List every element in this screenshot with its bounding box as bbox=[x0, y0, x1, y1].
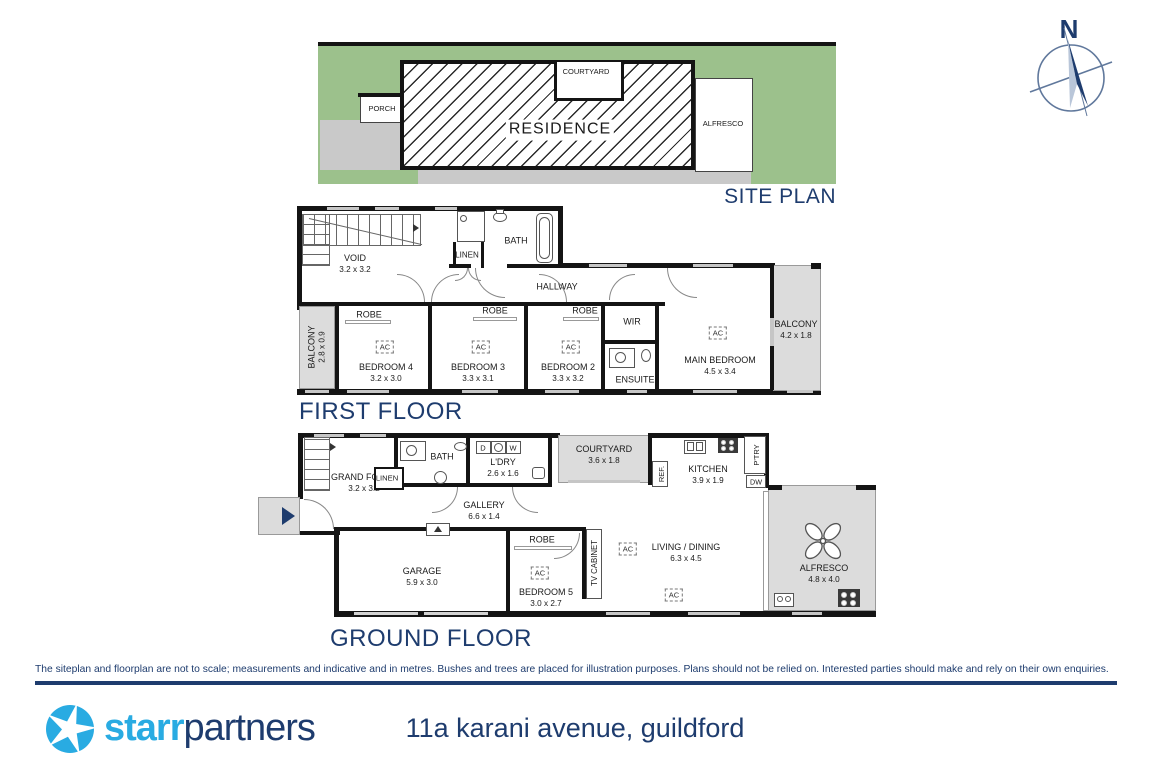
wall bbox=[548, 433, 552, 487]
wir-label: WIR bbox=[623, 317, 641, 327]
balcony-right-label: BALCONY 4.2 x 1.8 bbox=[774, 319, 817, 341]
window bbox=[545, 390, 579, 393]
wall bbox=[298, 433, 303, 499]
cooktop-burner bbox=[721, 440, 726, 445]
bbq-burner bbox=[841, 600, 847, 606]
garage-door bbox=[424, 612, 488, 615]
washer-label: W bbox=[509, 444, 516, 453]
robe-label: ROBE bbox=[356, 310, 382, 320]
ac-unit: AC bbox=[562, 341, 580, 354]
wall bbox=[335, 306, 339, 389]
ensuite-toilet bbox=[641, 349, 651, 362]
window bbox=[360, 434, 386, 437]
window bbox=[688, 612, 740, 615]
door-arc bbox=[397, 274, 425, 302]
dryer-label: D bbox=[480, 444, 485, 453]
wall bbox=[655, 306, 659, 389]
bath-basin-icon bbox=[406, 445, 417, 456]
window bbox=[347, 390, 389, 393]
wall bbox=[481, 242, 484, 268]
stairs bbox=[304, 437, 330, 491]
bath-label: BATH bbox=[504, 236, 527, 246]
window bbox=[606, 612, 650, 615]
wall bbox=[506, 531, 510, 611]
wall bbox=[856, 485, 876, 490]
window bbox=[589, 264, 627, 267]
dishwasher-label: DW bbox=[750, 478, 762, 487]
bbq-burner bbox=[850, 592, 856, 598]
outdoor-sink-bowl bbox=[777, 596, 783, 602]
window bbox=[314, 434, 344, 437]
ac-unit: AC bbox=[376, 341, 394, 354]
pantry-label: P'TRY bbox=[752, 444, 761, 465]
void-label: VOID 3.2 x 3.2 bbox=[339, 253, 370, 275]
site-plan: PORCH COURTYARD RESIDENCE ALFRESCO bbox=[318, 42, 836, 184]
cooktop-burner bbox=[721, 446, 726, 451]
wall bbox=[358, 93, 406, 97]
ac-unit: AC bbox=[709, 327, 727, 340]
robe-label: ROBE bbox=[482, 306, 508, 316]
ac-unit: AC bbox=[472, 341, 490, 354]
toilet-fixture bbox=[454, 442, 467, 451]
site-alfresco-label: ALFRESCO bbox=[703, 119, 743, 129]
disclaimer-text: The siteplan and floorplan are not to sc… bbox=[35, 664, 1117, 675]
ceiling-fan-icon bbox=[801, 519, 845, 563]
ground-floor-plan: GRAND FOYER 3.2 x 3.2 BATH LINEN D W L'D… bbox=[296, 433, 880, 625]
bbq-burner bbox=[850, 600, 856, 606]
stair-direction-arrow-icon bbox=[413, 224, 419, 232]
compass-north-label: N bbox=[1060, 14, 1079, 44]
wall bbox=[601, 306, 605, 389]
wall bbox=[811, 263, 821, 269]
living-dining-label: LIVING / DINING 6.3 x 4.5 bbox=[652, 542, 721, 564]
alfresco-label: ALFRESCO 4.8 x 4.0 bbox=[800, 563, 849, 585]
window bbox=[375, 207, 399, 210]
wall bbox=[318, 42, 836, 46]
wall bbox=[770, 346, 774, 390]
divider-rule bbox=[35, 681, 1117, 685]
ac-unit: AC bbox=[665, 589, 683, 602]
laundry-tub-icon bbox=[532, 467, 545, 479]
window bbox=[787, 390, 813, 393]
window bbox=[305, 390, 329, 393]
first-floor-plan: BALCONY 2.8 x 0.9 BALCONY 4.2 x 1.8 BATH bbox=[297, 206, 821, 397]
laundry-label: L'DRY 2.6 x 1.6 bbox=[487, 457, 518, 479]
tv-cabinet-label: TV CABINET bbox=[590, 540, 599, 586]
bedroom4-label: BEDROOM 4 3.2 x 3.0 bbox=[359, 362, 413, 384]
linen-label: LINEN bbox=[455, 251, 479, 260]
door-arc bbox=[512, 487, 538, 513]
bedroom5-label: BEDROOM 5 3.0 x 2.7 bbox=[519, 587, 573, 609]
gallery-label: GALLERY 6.6 x 1.4 bbox=[463, 500, 504, 522]
wall bbox=[466, 433, 470, 487]
wall bbox=[428, 306, 432, 389]
outdoor-sink-bowl bbox=[785, 596, 791, 602]
robe-closet bbox=[563, 317, 599, 321]
wall bbox=[558, 206, 563, 268]
ground-floor-title: GROUND FLOOR bbox=[330, 625, 532, 653]
wall bbox=[507, 264, 562, 268]
window bbox=[693, 390, 737, 393]
bedroom2-label: BEDROOM 2 3.3 x 3.2 bbox=[541, 362, 595, 384]
window bbox=[435, 207, 457, 210]
window bbox=[792, 612, 822, 615]
courtyard-label: COURTYARD 3.6 x 1.8 bbox=[576, 444, 632, 466]
site-courtyard-label: COURTYARD bbox=[561, 67, 612, 77]
bathtub-inner bbox=[539, 217, 550, 259]
window bbox=[327, 207, 359, 210]
residence-area bbox=[400, 60, 695, 170]
linen-label: LINEN bbox=[376, 474, 398, 483]
ac-unit: AC bbox=[619, 543, 637, 556]
compass-icon: N bbox=[1028, 6, 1114, 118]
ensuite-basin-icon bbox=[615, 352, 626, 363]
path-paving bbox=[418, 170, 751, 184]
kitchen-sink-bowl bbox=[696, 442, 703, 451]
wall bbox=[768, 485, 782, 490]
door-arc bbox=[667, 268, 697, 298]
garage-door bbox=[354, 612, 418, 615]
wall bbox=[334, 531, 339, 615]
wall bbox=[297, 302, 339, 306]
wall bbox=[770, 263, 774, 318]
residence-label: RESIDENCE bbox=[506, 120, 614, 141]
robe-label: ROBE bbox=[572, 306, 598, 316]
toilet-tank bbox=[496, 209, 504, 214]
window bbox=[462, 390, 498, 393]
bath-label: BATH bbox=[430, 452, 453, 462]
garage-label: GARAGE 5.9 x 3.0 bbox=[403, 566, 442, 588]
shower-head-icon bbox=[460, 215, 467, 222]
cooktop-burner bbox=[729, 446, 734, 451]
fridge-label: REF. bbox=[657, 466, 666, 482]
kitchen-label: KITCHEN 3.9 x 1.9 bbox=[688, 464, 728, 486]
door-arc bbox=[432, 487, 458, 513]
door-arc bbox=[431, 274, 459, 302]
entry-arrow-icon bbox=[282, 507, 295, 525]
main-bedroom-label: MAIN BEDROOM 4.5 x 3.4 bbox=[684, 355, 756, 377]
ac-unit: AC bbox=[531, 567, 549, 580]
door-arrow-icon bbox=[434, 526, 442, 532]
robe-label: ROBE bbox=[529, 535, 555, 545]
door-arc bbox=[609, 274, 635, 300]
kitchen-sink-bowl bbox=[687, 442, 694, 451]
ensuite-label: ENSUITE bbox=[615, 375, 654, 385]
bedroom3-label: BEDROOM 3 3.3 x 3.1 bbox=[451, 362, 505, 384]
washer-icon bbox=[494, 443, 503, 452]
wall bbox=[524, 306, 528, 389]
robe-closet bbox=[473, 317, 517, 321]
wash-basin-icon bbox=[434, 471, 447, 484]
window bbox=[693, 264, 733, 267]
first-floor-title: FIRST FLOOR bbox=[299, 398, 463, 426]
window bbox=[627, 390, 647, 393]
wall bbox=[601, 340, 659, 344]
window bbox=[568, 480, 640, 483]
balcony-door-window bbox=[770, 318, 774, 346]
robe-closet bbox=[345, 320, 391, 324]
property-address: 11a karani avenue, guildford bbox=[0, 713, 1150, 744]
door-arc bbox=[475, 268, 505, 298]
balcony-left-label: BALCONY 2.8 x 0.9 bbox=[306, 325, 328, 368]
stair-direction-arrow-icon bbox=[330, 443, 336, 451]
floorplan-sheet: N PORCH COURTYARD RESIDENCE ALFRESCO SIT… bbox=[0, 0, 1150, 767]
door-arc bbox=[554, 533, 580, 559]
front-door-arc bbox=[304, 499, 334, 529]
bbq-burner bbox=[841, 592, 847, 598]
cooktop-burner bbox=[729, 440, 734, 445]
porch-label: PORCH bbox=[368, 104, 395, 114]
